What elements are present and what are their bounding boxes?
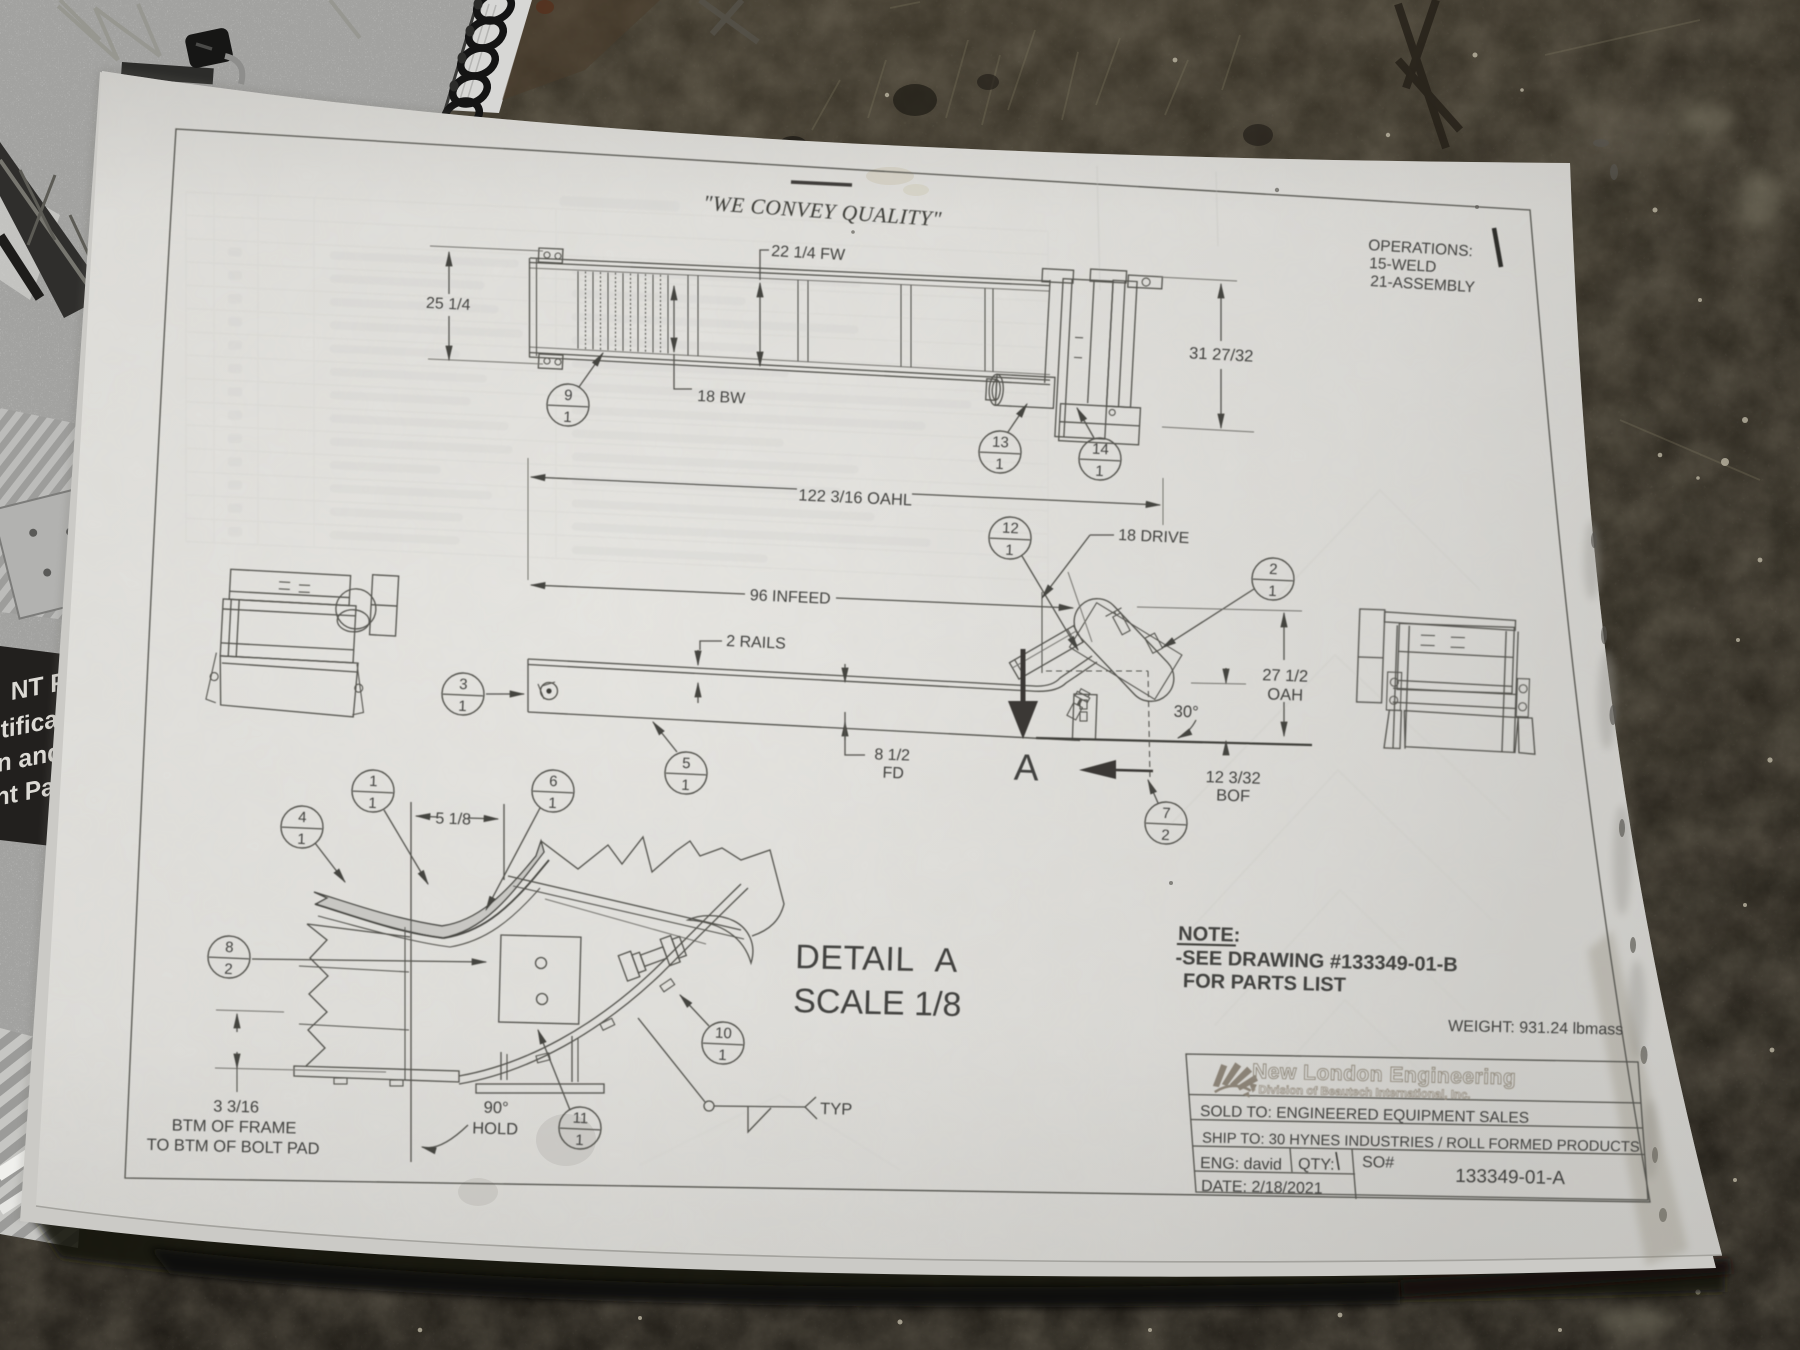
svg-text:1: 1 (369, 773, 378, 790)
svg-text:BOF: BOF (1216, 787, 1250, 806)
svg-text:1: 1 (297, 831, 306, 848)
svg-text:30°: 30° (1173, 703, 1199, 722)
svg-text:DATE: 2/18/2021: DATE: 2/18/2021 (1201, 1178, 1323, 1198)
svg-text:1: 1 (1005, 542, 1014, 559)
svg-text:2 RAILS: 2 RAILS (726, 633, 786, 653)
svg-text:3: 3 (459, 676, 468, 693)
svg-text:SO#: SO# (1362, 1154, 1394, 1172)
svg-text:25 1/4: 25 1/4 (426, 295, 471, 314)
svg-text:A: A (1013, 747, 1039, 789)
svg-text:90°: 90° (483, 1099, 508, 1118)
svg-text:1: 1 (458, 698, 467, 715)
svg-text:18 DRIVE: 18 DRIVE (1118, 527, 1190, 547)
svg-text:OAH: OAH (1267, 685, 1303, 704)
svg-text:1: 1 (995, 456, 1004, 473)
svg-text:2: 2 (224, 961, 233, 978)
svg-text:HOLD: HOLD (472, 1119, 518, 1138)
svg-text:7: 7 (1162, 805, 1171, 822)
svg-text:1: 1 (1268, 583, 1277, 600)
svg-text:9: 9 (564, 387, 573, 404)
svg-text:3 3/16: 3 3/16 (213, 1097, 259, 1116)
svg-text:BTM OF FRAME: BTM OF FRAME (172, 1116, 297, 1137)
svg-text:8: 8 (225, 939, 234, 956)
svg-text:10: 10 (715, 1025, 732, 1043)
svg-text:QTY:: QTY: (1298, 1156, 1335, 1174)
svg-text:1: 1 (563, 409, 572, 426)
svg-text:TYP: TYP (820, 1100, 853, 1119)
svg-text:5 1/8: 5 1/8 (435, 810, 471, 828)
svg-text:27 1/2: 27 1/2 (1262, 666, 1308, 686)
svg-text:12: 12 (1002, 520, 1019, 538)
svg-text:DETAIL A: DETAIL A (795, 938, 958, 980)
svg-text:1: 1 (718, 1047, 727, 1064)
svg-text:2: 2 (1269, 561, 1278, 578)
svg-text:13: 13 (992, 434, 1009, 452)
svg-text:4: 4 (298, 809, 307, 826)
svg-text:1: 1 (1095, 463, 1104, 480)
svg-text:1: 1 (681, 777, 690, 794)
svg-text:133349-01-A: 133349-01-A (1455, 1166, 1566, 1189)
svg-text:FOR PARTS LIST: FOR PARTS LIST (1183, 970, 1346, 996)
svg-text:1: 1 (548, 795, 557, 812)
svg-text:FD: FD (882, 765, 904, 783)
svg-text:11: 11 (572, 1110, 588, 1128)
svg-text:1: 1 (575, 1132, 584, 1149)
svg-text:12 3/32: 12 3/32 (1205, 768, 1261, 788)
svg-text:NOTE:: NOTE: (1178, 923, 1241, 947)
svg-text:ENG: david: ENG: david (1200, 1155, 1282, 1174)
svg-text:18 BW: 18 BW (697, 388, 747, 408)
svg-text:8 1/2: 8 1/2 (874, 746, 910, 764)
svg-text:5: 5 (682, 755, 691, 772)
svg-text:2: 2 (1161, 827, 1170, 844)
svg-text:6: 6 (549, 773, 558, 790)
svg-text:1: 1 (368, 795, 377, 812)
svg-text:SCALE 1/8: SCALE 1/8 (793, 982, 962, 1024)
svg-text:31 27/32: 31 27/32 (1189, 344, 1254, 365)
svg-text:14: 14 (1092, 441, 1109, 459)
